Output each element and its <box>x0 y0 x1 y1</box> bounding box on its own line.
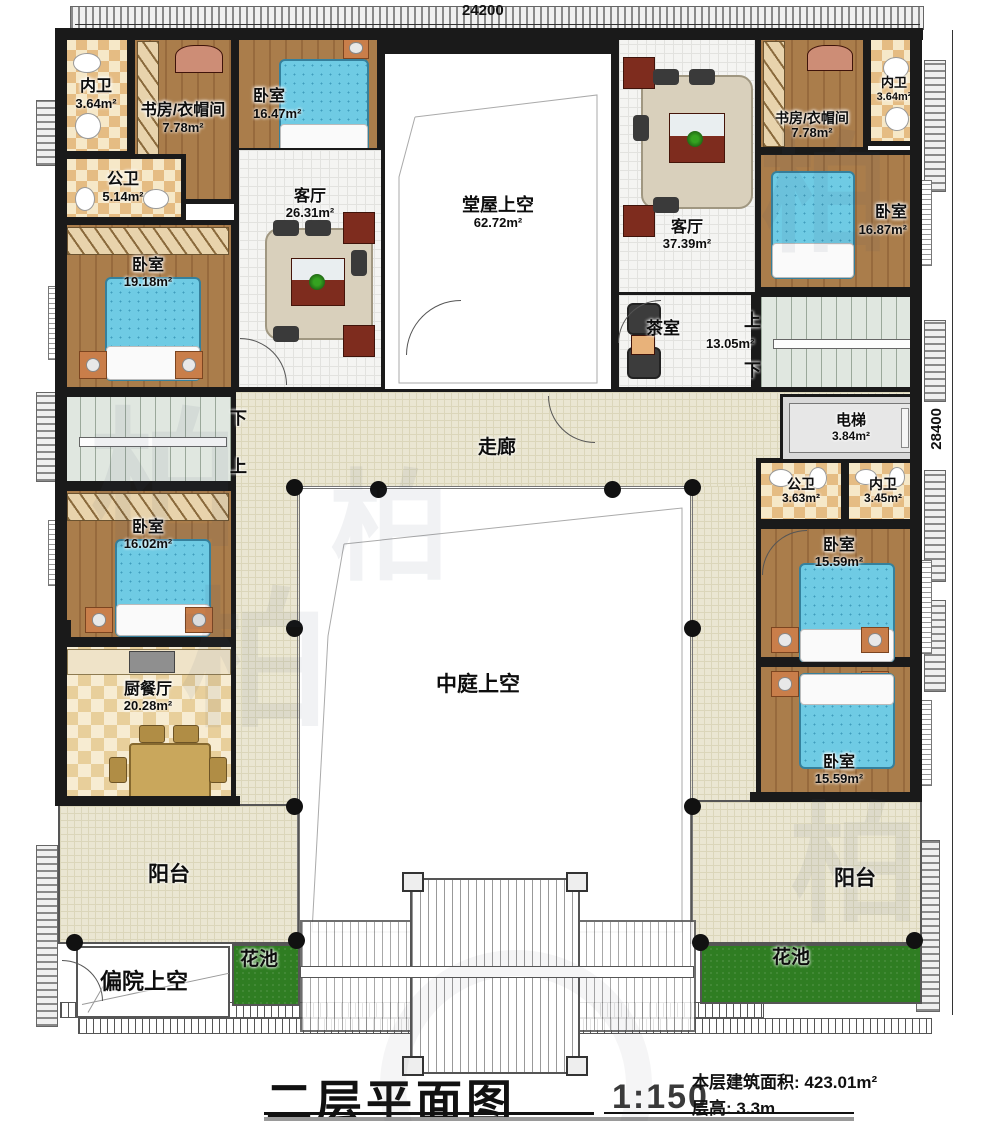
column-dot <box>286 798 303 815</box>
wall-hall-void-top <box>382 34 614 54</box>
room-bedroom-1918: 卧室19.18m² <box>60 220 236 392</box>
column-dot <box>288 932 305 949</box>
wall-left <box>55 28 67 806</box>
floor-height-label: 层高: <box>692 1099 732 1118</box>
room-bedroom-1602: 卧室16.02m² <box>60 486 236 642</box>
room-bath-public-2: 公卫3.63m² <box>756 458 846 524</box>
room-area: 37.39m² <box>663 237 711 252</box>
corridor-right <box>690 486 756 842</box>
column-dot <box>66 934 83 951</box>
room-area: 3.64m² <box>75 97 116 112</box>
wall-rightwing-bottom <box>750 792 922 802</box>
floor-area-value: 423.01m² <box>804 1073 877 1092</box>
room-name: 客厅 <box>671 219 703 237</box>
stairs-right-up-label: 上 <box>744 306 761 331</box>
room-bedroom-1687: 卧室16.87m² <box>756 150 922 292</box>
wall-kitchen-bottom <box>55 796 240 806</box>
stairs-left-up-label: 上 <box>230 452 247 477</box>
stair-pillar <box>566 872 588 892</box>
courtyard-outline <box>300 486 690 942</box>
stair-pillar <box>566 1056 588 1076</box>
tree <box>702 946 756 1000</box>
column-dot <box>370 481 387 498</box>
room-area: 7.78m² <box>791 126 832 141</box>
dim-line-top <box>75 24 920 25</box>
courtyard-void <box>300 486 690 942</box>
room-area: 20.28m² <box>124 699 172 714</box>
floor-area-label: 本层建筑面积: <box>692 1073 800 1092</box>
room-name: 卧室 <box>875 204 907 222</box>
room-area: 7.78m² <box>162 121 203 136</box>
column-dot <box>604 481 621 498</box>
floor-height-value: 3.3m <box>736 1099 775 1118</box>
room-name: 卧室 <box>132 257 164 275</box>
flowerbed-right-label: 花池 <box>772 942 810 969</box>
column-dot <box>684 798 701 815</box>
column-dot <box>286 620 303 637</box>
column-dot <box>286 479 303 496</box>
balcony-right-label: 阳台 <box>834 862 876 892</box>
eave-right-1 <box>924 60 946 192</box>
balcony-right <box>690 800 922 944</box>
railing-top <box>300 486 690 489</box>
eave-right-2 <box>924 320 946 402</box>
side-yard-label: 偏院上空 <box>100 964 188 996</box>
room-name: 卧室 <box>823 537 855 555</box>
flowerbed-right <box>700 944 922 1004</box>
tea-room-label: 茶室 <box>646 314 680 339</box>
room-area: 15.59m² <box>815 772 863 787</box>
room-area: 16.87m² <box>859 223 907 238</box>
stair-pillar <box>402 872 424 892</box>
stairs-right-down-label: 下 <box>744 356 761 381</box>
room-bedroom-1559b: 卧室15.59m² <box>756 662 922 802</box>
stairs-left-down-label: 下 <box>230 404 247 429</box>
room-name: 卧室 <box>132 519 164 537</box>
room-bath-public-1: 公卫5.14m² <box>60 154 186 222</box>
room-area: 5.14m² <box>102 190 143 205</box>
room-area: 3.64m² <box>877 91 912 104</box>
title-underline <box>264 1112 594 1115</box>
floor-height-info: 层高: 3.3m <box>692 1094 775 1119</box>
column-dot <box>684 479 701 496</box>
room-name: 客厅 <box>294 188 326 206</box>
stairs-left <box>60 392 236 486</box>
room-name: 公卫 <box>107 171 139 189</box>
wall-right <box>910 28 922 802</box>
corridor-label: 走廊 <box>478 432 516 459</box>
dim-right-value: 28400 <box>928 408 945 450</box>
courtyard-label: 中庭上空 <box>436 668 520 698</box>
railing-left <box>297 486 300 942</box>
room-area: 3.63m² <box>782 492 820 506</box>
dim-line-right <box>952 30 953 1015</box>
floor-area-info: 本层建筑面积: 423.01m² <box>692 1068 877 1093</box>
dim-top-value: 24200 <box>462 2 504 19</box>
column-dot <box>684 620 701 637</box>
room-bath-nw1: 内卫3.64m² <box>60 34 132 156</box>
room-kitchen-dining: 厨餐厅20.28m² <box>60 642 236 802</box>
stairs-right <box>756 292 922 392</box>
railing-right <box>690 486 693 942</box>
corridor-left <box>234 486 300 846</box>
tree <box>702 1000 756 1054</box>
column-dot <box>906 932 923 949</box>
tea-room-area: 13.05m² <box>706 336 754 351</box>
flowerbed-left-label: 花池 <box>240 944 278 971</box>
balcony-left-label: 阳台 <box>148 858 190 888</box>
room-name: 书房/衣帽间 <box>775 110 849 126</box>
wall-stub-left <box>55 620 71 638</box>
room-area: 3.45m² <box>864 492 902 506</box>
room-name: 厨餐厅 <box>124 681 172 699</box>
column-dot <box>692 934 709 951</box>
floor-plan-canvas: 内卫3.64m² 书房/衣帽间7.78m² 公卫5.14m² 卧室19.18m²… <box>0 0 1000 1121</box>
eave-left-3 <box>36 845 58 1027</box>
elevator-shaft: 电梯3.84m² <box>780 394 922 462</box>
grand-stair-landing <box>300 966 694 978</box>
room-name: 内卫 <box>80 78 112 96</box>
room-study-2: 书房/衣帽间7.78m² <box>756 34 868 152</box>
